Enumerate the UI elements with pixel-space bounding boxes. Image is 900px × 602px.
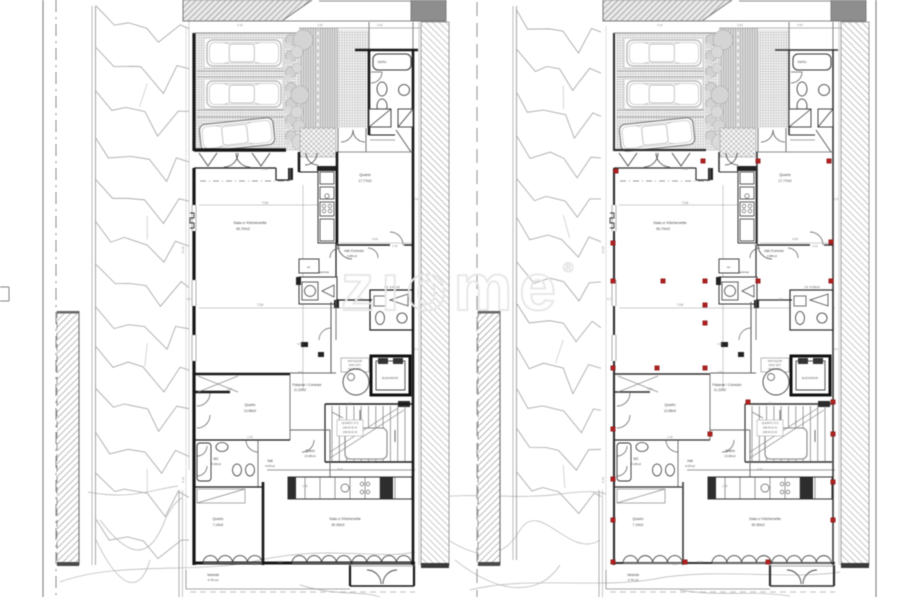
svg-text:4.18m2: 4.18m2 xyxy=(211,462,221,466)
svg-text:45.70m2: 45.70m2 xyxy=(236,227,250,231)
svg-text:banho: banho xyxy=(798,60,807,64)
svg-text:7.04: 7.04 xyxy=(262,201,268,205)
svg-text:5.00: 5.00 xyxy=(277,560,283,564)
svg-text:2.8: 2.8 xyxy=(834,197,838,201)
svg-text:1.1: 1.1 xyxy=(370,459,374,463)
svg-text:Sala c/ Kitchenette: Sala c/ Kitchenette xyxy=(749,517,781,521)
svg-text:INST.EQUIP: INST.EQUIP xyxy=(768,359,783,363)
svg-text:arr.: arr. xyxy=(727,265,731,269)
svg-text:Patamar / Corredor: Patamar / Corredor xyxy=(292,383,322,387)
svg-text:arr.: arr. xyxy=(307,265,311,269)
svg-text:30.30m2: 30.30m2 xyxy=(751,523,764,527)
svg-text:1.1: 1.1 xyxy=(790,459,794,463)
svg-text:17.77m2: 17.77m2 xyxy=(358,179,371,183)
svg-text:Quarto: Quarto xyxy=(779,173,791,177)
svg-text:8.10: 8.10 xyxy=(181,477,185,483)
svg-text:13.08m2: 13.08m2 xyxy=(724,454,736,458)
svg-text:2.2: 2.2 xyxy=(348,401,352,405)
svg-text:(AB.40.0) 42: (AB.40.0) 42 xyxy=(763,430,778,434)
svg-text:0.90: 0.90 xyxy=(717,342,723,346)
svg-text:7.04: 7.04 xyxy=(682,201,688,205)
svg-text:14.30: 14.30 xyxy=(181,246,185,254)
svg-text:I.S. 4.43m2: I.S. 4.43m2 xyxy=(804,285,820,289)
svg-text:0.60: 0.60 xyxy=(377,23,383,27)
svg-text:AVAC EXT.: AVAC EXT. xyxy=(349,363,362,367)
svg-text:2.8: 2.8 xyxy=(414,197,418,201)
svg-text:3.05: 3.05 xyxy=(252,562,258,566)
svg-text:Varanda: Varanda xyxy=(207,573,219,577)
svg-text:6.2: 6.2 xyxy=(187,297,191,301)
svg-text:13.08m2: 13.08m2 xyxy=(304,454,316,458)
svg-text:AVAC EXT.: AVAC EXT. xyxy=(769,363,782,367)
svg-text:11.22m2: 11.22m2 xyxy=(714,388,726,392)
svg-text:4.50: 4.50 xyxy=(372,237,378,241)
svg-text:4.18m2: 4.18m2 xyxy=(631,462,641,466)
svg-text:2.20: 2.20 xyxy=(392,244,398,248)
svg-text:1.90: 1.90 xyxy=(722,484,728,488)
svg-text:2.2: 2.2 xyxy=(768,401,772,405)
svg-text:INST.EQUIP: INST.EQUIP xyxy=(348,359,363,363)
svg-text:0.90: 0.90 xyxy=(297,342,303,346)
svg-text:4.1: 4.1 xyxy=(414,347,418,351)
svg-text:4.78 m2: 4.78 m2 xyxy=(628,578,639,582)
svg-text:ELEVADOR: ELEVADOR xyxy=(802,376,819,380)
svg-text:4.07m2: 4.07m2 xyxy=(685,464,695,468)
svg-text:Quarto: Quarto xyxy=(245,403,256,407)
svg-text:4.10: 4.10 xyxy=(757,467,763,471)
svg-text:5.10: 5.10 xyxy=(237,23,243,27)
svg-text:(AB.40.0) 41: (AB.40.0) 41 xyxy=(763,426,778,430)
svg-text:3.20: 3.20 xyxy=(317,23,323,27)
svg-text:4.07m2: 4.07m2 xyxy=(265,464,275,468)
svg-text:1.90: 1.90 xyxy=(302,484,308,488)
svg-text:1.10: 1.10 xyxy=(777,297,783,301)
svg-text:2.45: 2.45 xyxy=(247,435,253,439)
svg-text:2.4: 2.4 xyxy=(334,242,338,246)
svg-text:6.2: 6.2 xyxy=(607,297,611,301)
svg-text:Hall: Hall xyxy=(267,459,273,463)
svg-text:14.30: 14.30 xyxy=(601,246,605,254)
svg-text:13.08m2: 13.08m2 xyxy=(664,409,677,413)
svg-text:0.8: 0.8 xyxy=(718,370,722,374)
svg-text:Varanda: Varanda xyxy=(627,573,639,577)
svg-text:3.05: 3.05 xyxy=(672,562,678,566)
svg-text:4.50: 4.50 xyxy=(792,237,798,241)
svg-text:Quarto: Quarto xyxy=(213,517,224,521)
svg-text:®: ® xyxy=(563,259,574,275)
svg-text:4.88m2: 4.88m2 xyxy=(767,254,777,258)
svg-text:7.04: 7.04 xyxy=(257,303,263,307)
svg-text:(AB.40.0) 42: (AB.40.0) 42 xyxy=(343,430,358,434)
svg-text:1.50: 1.50 xyxy=(262,167,268,171)
svg-text:4.78 m2: 4.78 m2 xyxy=(208,578,219,582)
svg-text:3.30: 3.30 xyxy=(227,387,233,391)
svg-text:7.14m2: 7.14m2 xyxy=(633,523,644,527)
svg-text:13.08m2: 13.08m2 xyxy=(244,409,257,413)
svg-text:Sala c/ Kitchenette: Sala c/ Kitchenette xyxy=(653,220,687,225)
svg-text:zıome: zıome xyxy=(341,250,563,324)
svg-text:4.10: 4.10 xyxy=(337,467,343,471)
svg-text:ELEVADOR: ELEVADOR xyxy=(382,376,399,380)
svg-text:Hall /Corredor: Hall /Corredor xyxy=(764,249,785,253)
svg-text:5.00: 5.00 xyxy=(697,560,703,564)
svg-text:Quarto: Quarto xyxy=(359,173,371,177)
svg-text:3.20: 3.20 xyxy=(737,23,743,27)
svg-text:7.04: 7.04 xyxy=(677,303,683,307)
svg-text:0.60: 0.60 xyxy=(797,23,803,27)
svg-text:2.4: 2.4 xyxy=(754,242,758,246)
svg-text:Patamar / Corredor: Patamar / Corredor xyxy=(712,383,742,387)
svg-text:Sala c/ Kitchenette: Sala c/ Kitchenette xyxy=(233,220,267,225)
svg-text:45.70m2: 45.70m2 xyxy=(656,227,670,231)
svg-text:Quarto: Quarto xyxy=(633,517,644,521)
svg-text:2.45: 2.45 xyxy=(667,435,673,439)
svg-text:Sala c/ Kitchenette: Sala c/ Kitchenette xyxy=(329,517,361,521)
svg-text:Quarto: Quarto xyxy=(665,403,676,407)
svg-text:30.30m2: 30.30m2 xyxy=(331,523,344,527)
svg-text:3.30: 3.30 xyxy=(647,387,653,391)
svg-text:QUARTO 27.5: QUARTO 27.5 xyxy=(342,421,359,425)
svg-text:Quarto: Quarto xyxy=(725,449,735,453)
svg-text:17.77m2: 17.77m2 xyxy=(778,179,791,183)
svg-text:5.10: 5.10 xyxy=(657,23,663,27)
svg-text:Hall: Hall xyxy=(687,459,693,463)
svg-text:11.22m2: 11.22m2 xyxy=(294,388,306,392)
svg-text:4.1: 4.1 xyxy=(834,347,838,351)
svg-text:Quarto: Quarto xyxy=(305,449,315,453)
svg-text:0.8: 0.8 xyxy=(298,370,302,374)
svg-text:2.20: 2.20 xyxy=(812,244,818,248)
svg-text:QUARTO 27.5: QUARTO 27.5 xyxy=(762,421,779,425)
svg-text:7.14m2: 7.14m2 xyxy=(213,523,224,527)
svg-text:1.50: 1.50 xyxy=(682,167,688,171)
svg-text:WC: WC xyxy=(633,457,639,461)
svg-text:WC: WC xyxy=(213,457,219,461)
svg-text:8.10: 8.10 xyxy=(601,477,605,483)
svg-text:(AB.40.0) 41: (AB.40.0) 41 xyxy=(343,426,358,430)
svg-text:banho: banho xyxy=(378,60,387,64)
